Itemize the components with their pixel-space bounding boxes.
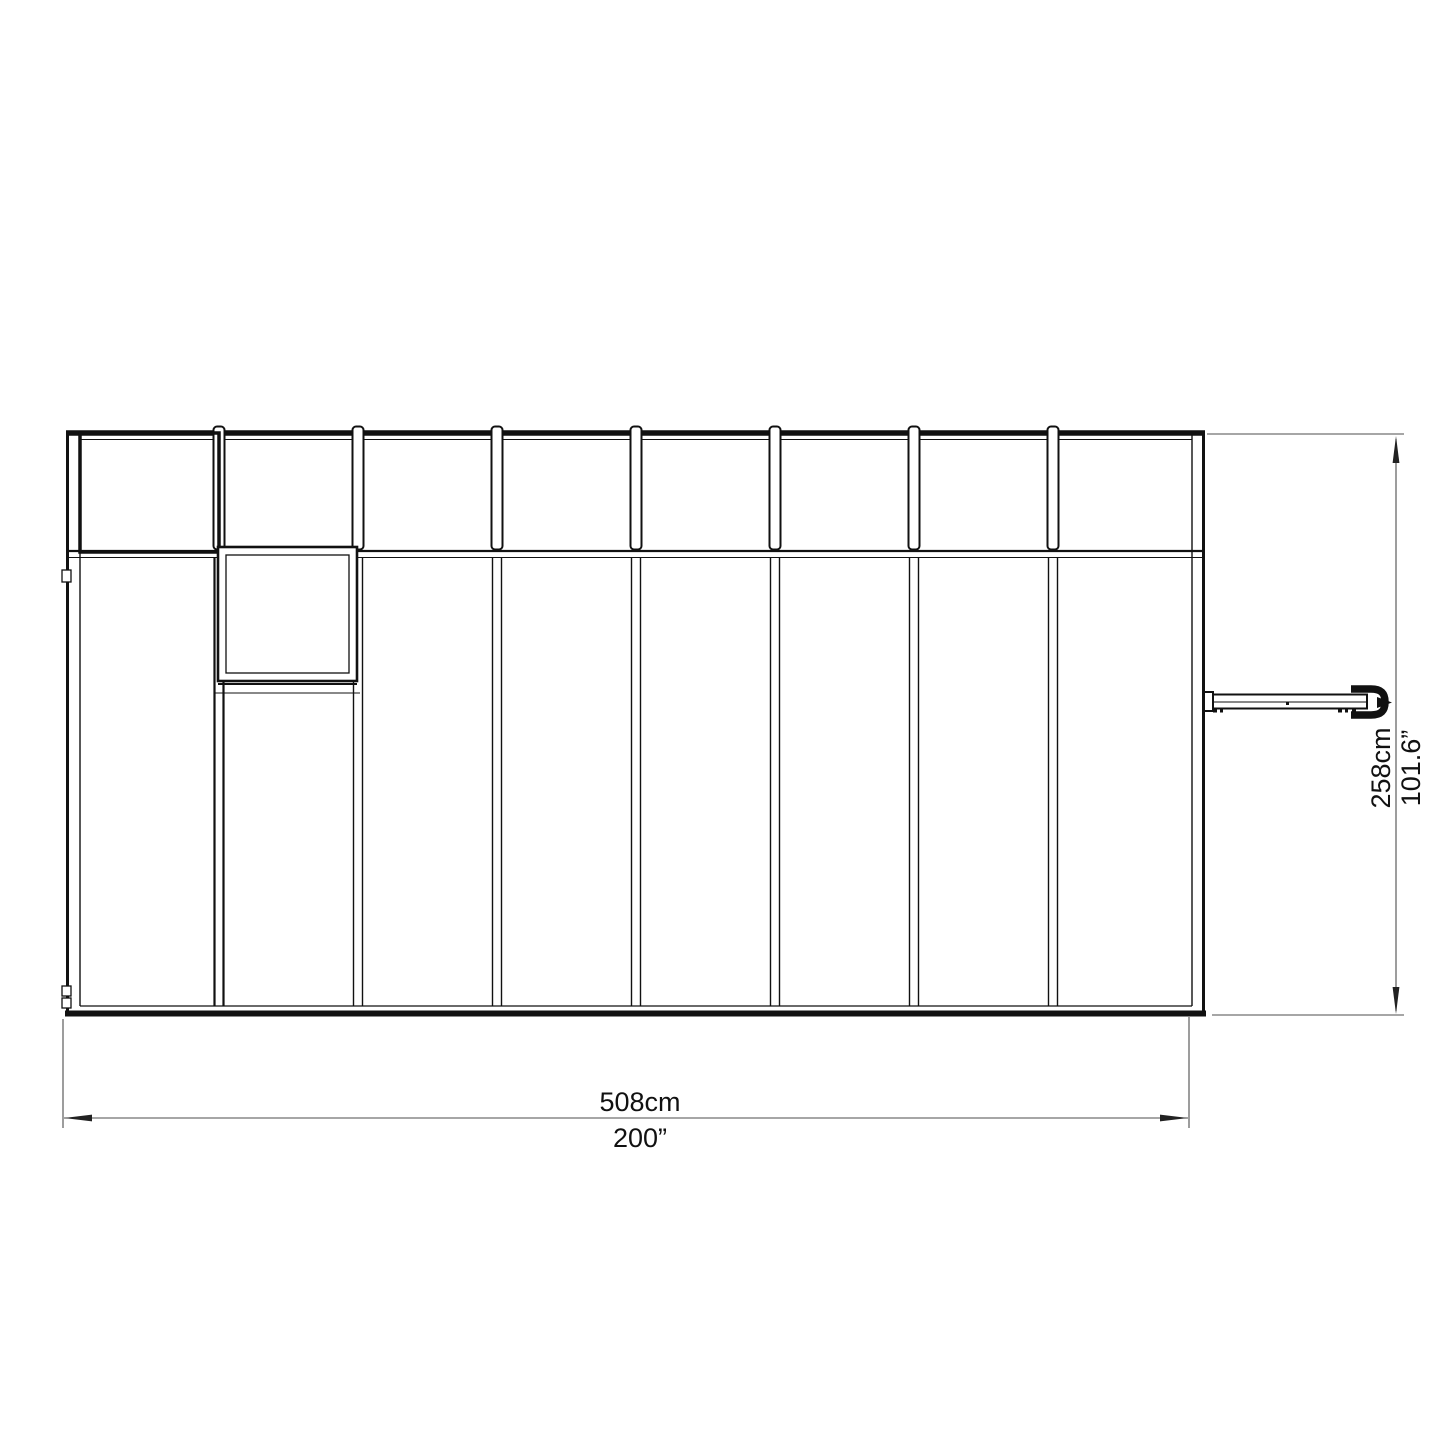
height-dimension: 258cm 101.6” [1207,434,1426,1015]
structure-frame [62,427,1206,1014]
height-label-cm: 258cm [1366,727,1396,808]
roof-mullion [770,427,781,550]
width-label-inch: 200” [613,1123,667,1153]
width-label-cm: 508cm [599,1087,680,1117]
side-window-vent [214,547,360,693]
roof-mullion [492,427,503,550]
roof-mullion [631,427,642,550]
height-label-inch: 101.6” [1396,730,1426,807]
left-post-hinge-icon [62,998,71,1008]
arrow-down-icon [1393,987,1400,1014]
roof-bay-1-frame [80,433,219,552]
window-outer-frame [218,547,357,681]
roof-mullion [353,427,364,550]
roof-mullions [214,427,1059,550]
width-dimension: 508cm 200” [63,1017,1189,1153]
left-post-hinge-icon [62,986,71,996]
right-post [1192,431,1204,1013]
technical-drawing: 258cm 101.6” 508cm 200” [0,0,1440,1440]
roof-mullion [1048,427,1059,550]
left-post [62,431,80,1013]
arrow-up-icon [1393,436,1400,463]
arrow-right-icon [1160,1115,1188,1122]
handle-mount [1204,692,1213,711]
roof-mullion [909,427,920,550]
arrow-left-icon [64,1115,92,1122]
door-handle-top-view [1204,689,1392,715]
left-post-hinge-icon [62,570,71,582]
